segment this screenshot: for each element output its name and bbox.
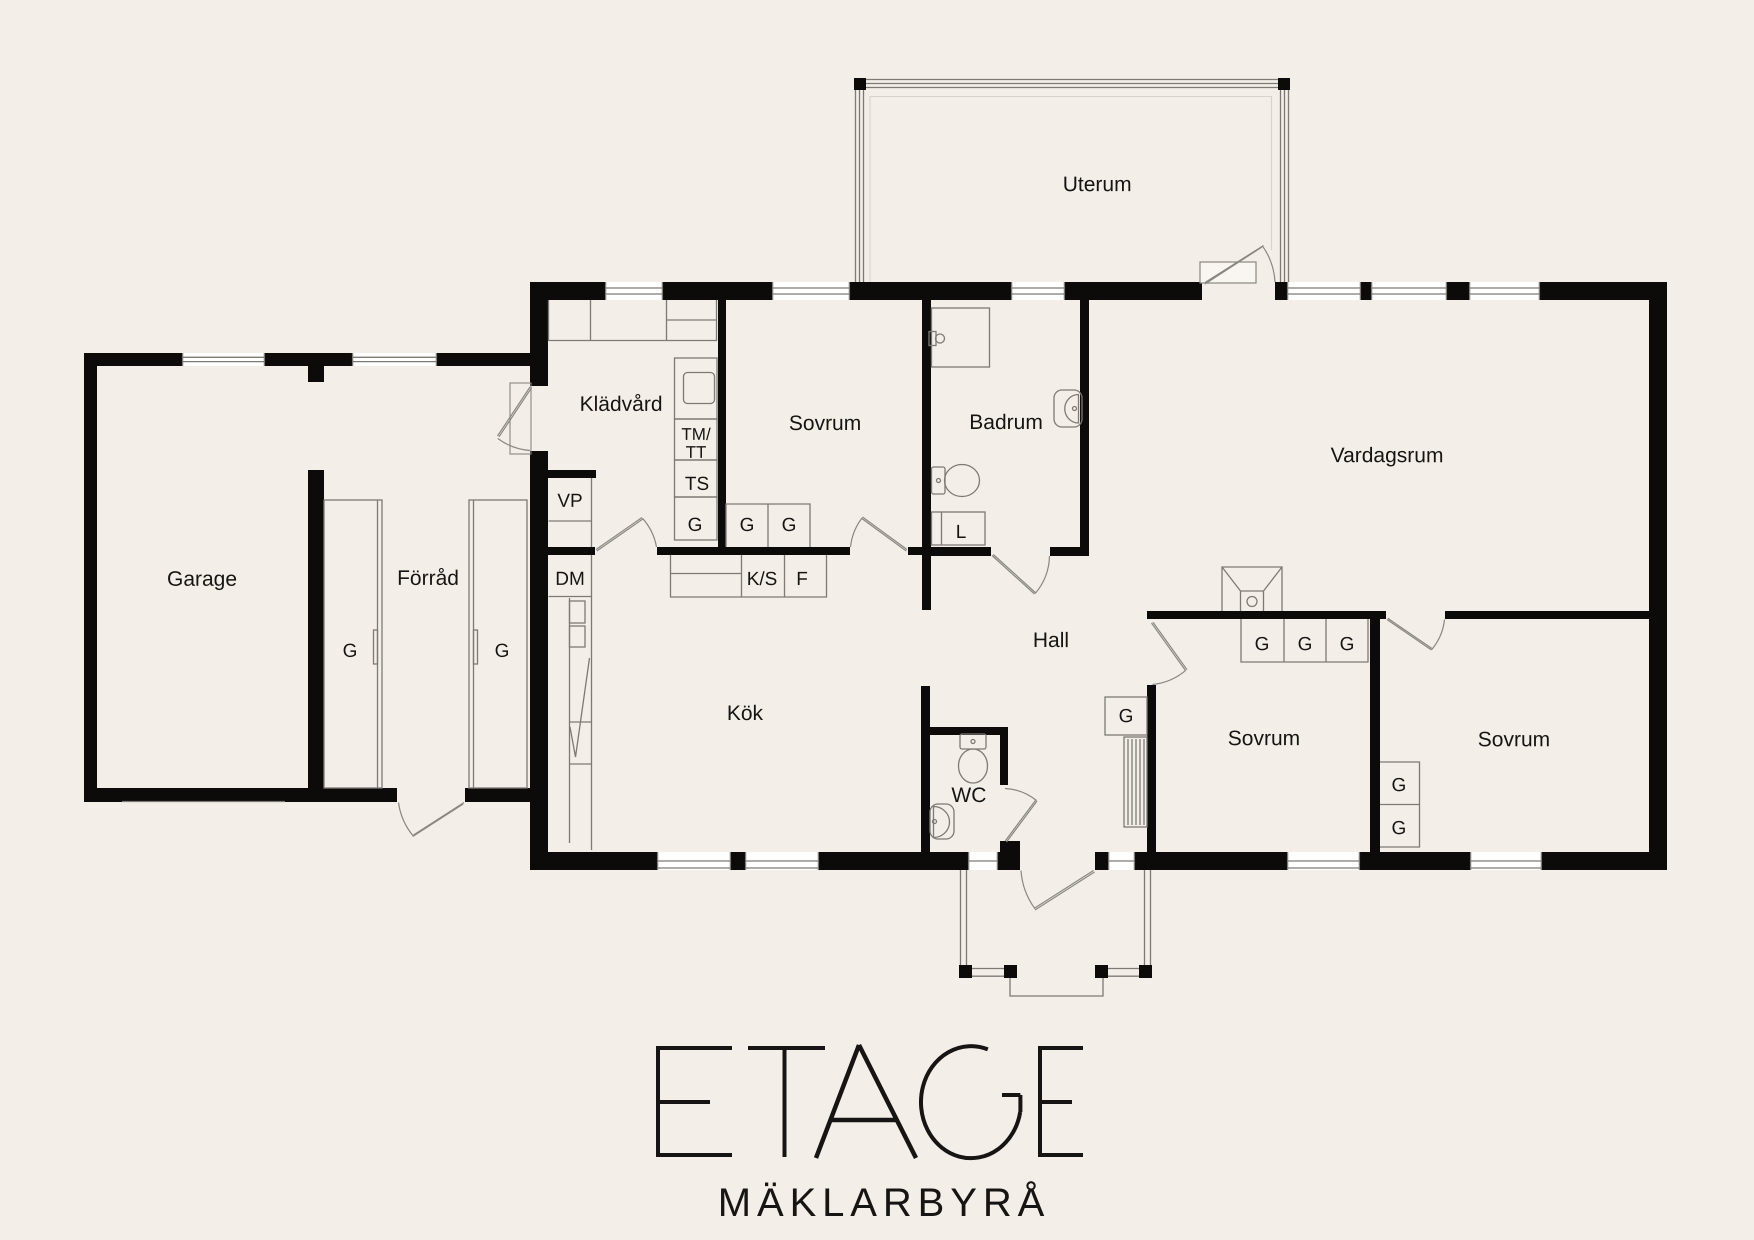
svg-text:Sovrum: Sovrum <box>1228 727 1300 750</box>
svg-text:Garage: Garage <box>167 568 237 591</box>
svg-text:DM: DM <box>555 569 585 590</box>
svg-text:G: G <box>343 641 358 662</box>
svg-text:TM/: TM/ <box>681 425 711 444</box>
svg-text:G: G <box>782 515 797 536</box>
svg-text:G: G <box>1392 818 1407 839</box>
svg-text:TT: TT <box>686 443 707 462</box>
svg-text:F: F <box>796 569 808 590</box>
svg-text:Badrum: Badrum <box>969 411 1043 434</box>
svg-text:G: G <box>1392 775 1407 796</box>
svg-text:Hall: Hall <box>1033 629 1069 652</box>
svg-text:Sovrum: Sovrum <box>789 412 861 435</box>
svg-text:L: L <box>956 522 967 543</box>
svg-text:G: G <box>688 515 703 536</box>
svg-text:G: G <box>1298 634 1313 655</box>
svg-text:G: G <box>740 515 755 536</box>
svg-text:Klädvård: Klädvård <box>580 393 663 416</box>
svg-text:Förråd: Förråd <box>397 567 459 590</box>
svg-text:MÄKLARBYRÅ: MÄKLARBYRÅ <box>718 1180 1050 1225</box>
svg-text:G: G <box>1255 634 1270 655</box>
svg-text:G: G <box>1340 634 1355 655</box>
svg-text:VP: VP <box>557 491 582 512</box>
svg-text:TS: TS <box>685 474 709 495</box>
svg-text:G: G <box>495 641 510 662</box>
svg-text:Uterum: Uterum <box>1063 173 1132 196</box>
svg-text:Sovrum: Sovrum <box>1478 728 1550 751</box>
svg-text:Vardagsrum: Vardagsrum <box>1331 444 1444 467</box>
svg-text:G: G <box>1119 706 1134 727</box>
svg-text:K/S: K/S <box>747 569 778 590</box>
svg-text:WC: WC <box>951 784 986 807</box>
svg-text:Kök: Kök <box>727 702 764 725</box>
